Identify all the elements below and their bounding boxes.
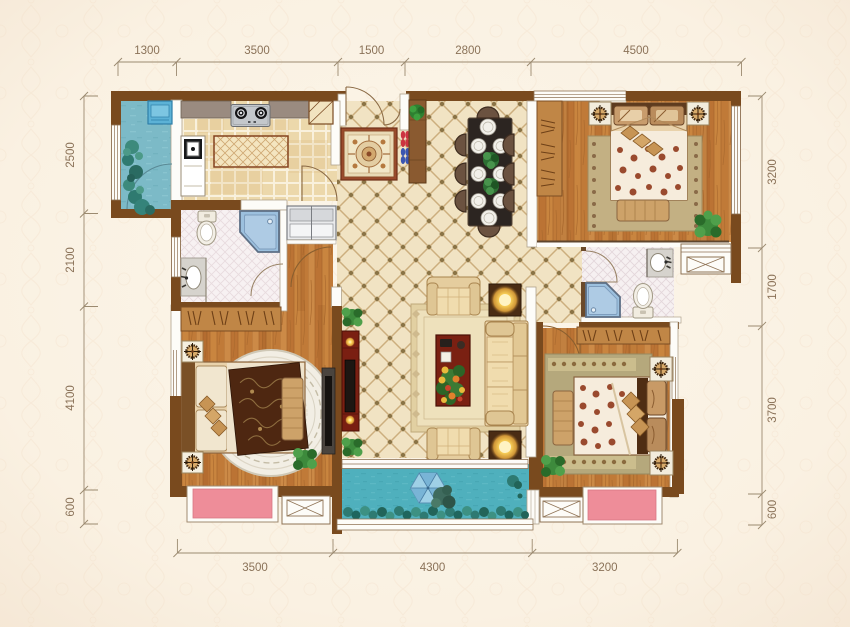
svg-text:3500: 3500 <box>244 45 270 57</box>
svg-text:3700: 3700 <box>767 397 779 423</box>
svg-text:600: 600 <box>767 500 779 519</box>
svg-text:600: 600 <box>65 497 77 516</box>
svg-text:4500: 4500 <box>623 45 649 57</box>
svg-text:1500: 1500 <box>359 45 385 57</box>
svg-text:1700: 1700 <box>767 274 779 300</box>
svg-text:1300: 1300 <box>134 45 160 57</box>
svg-text:2100: 2100 <box>65 247 77 273</box>
svg-text:3200: 3200 <box>592 562 618 574</box>
svg-text:4300: 4300 <box>420 562 446 574</box>
svg-text:3500: 3500 <box>242 562 268 574</box>
svg-text:2500: 2500 <box>65 142 77 168</box>
svg-text:4100: 4100 <box>65 385 77 411</box>
svg-text:2800: 2800 <box>455 45 481 57</box>
svg-text:3200: 3200 <box>767 159 779 185</box>
